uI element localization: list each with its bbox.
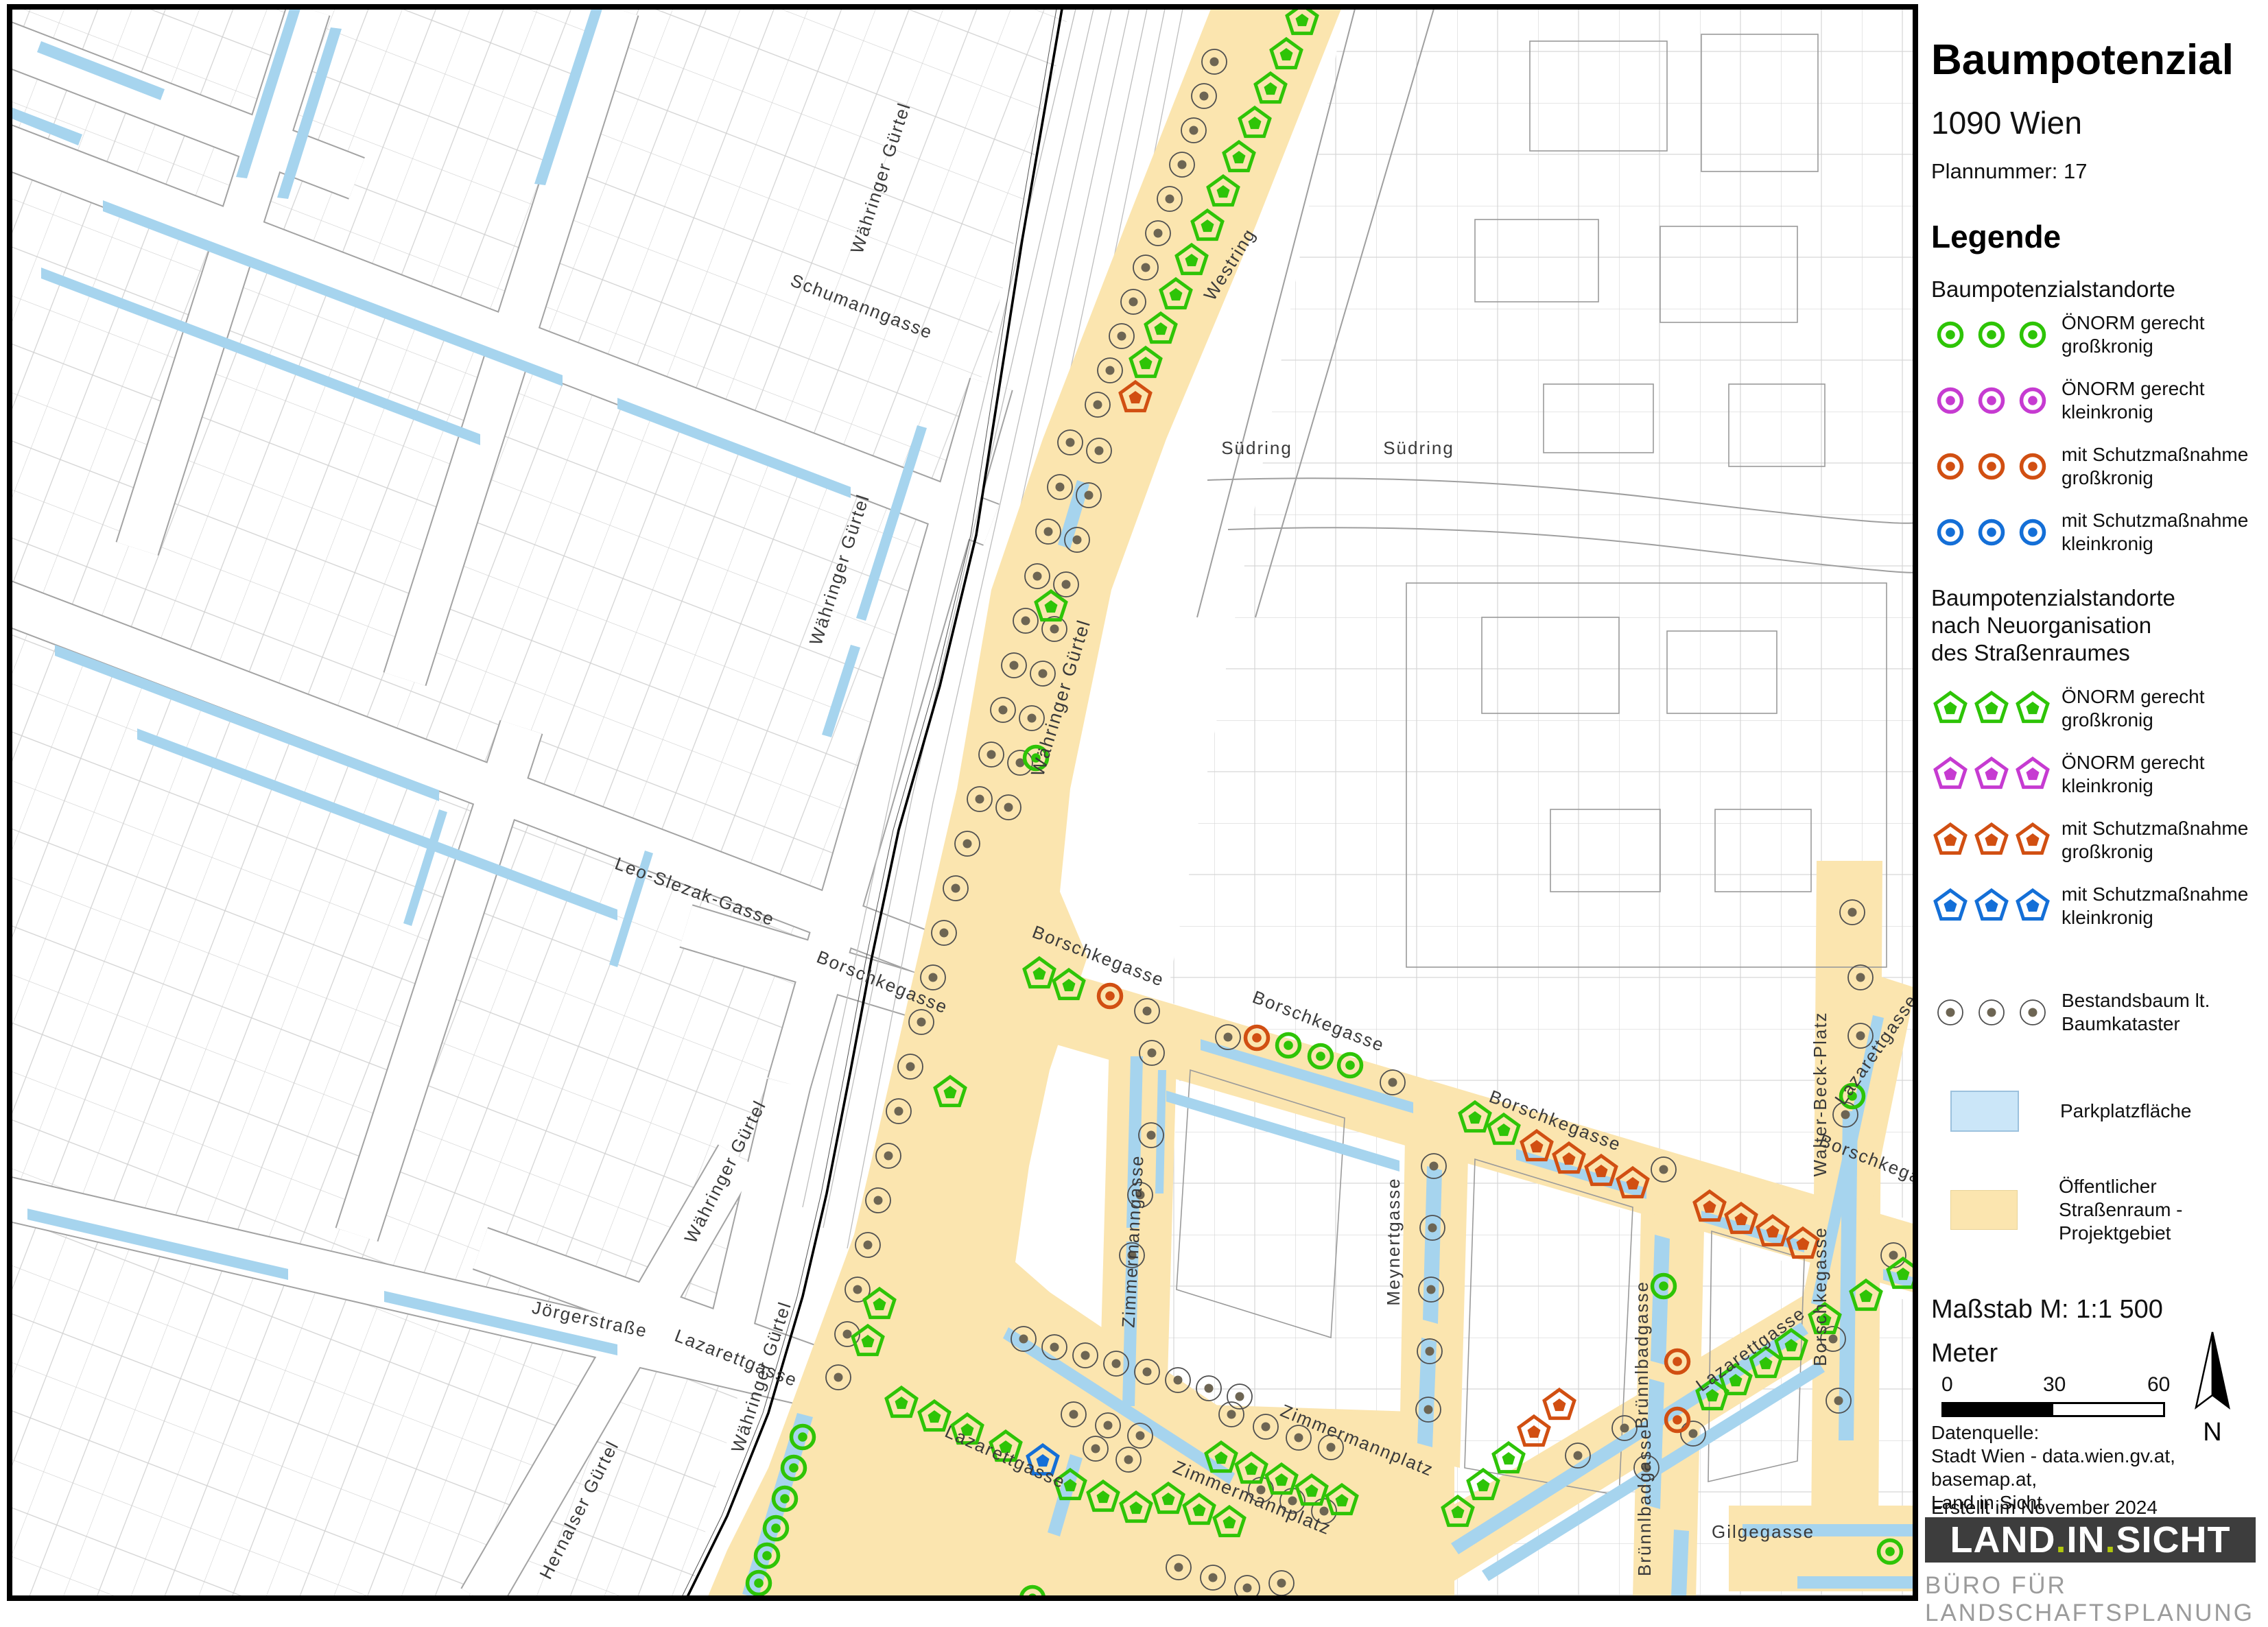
logo-dot: .	[2105, 1519, 2116, 1561]
legend-section2-line: Baumpotenzialstandorte	[1931, 584, 2175, 612]
scale-unit: Meter	[1931, 1339, 1998, 1368]
legend-label: großkronig	[2062, 466, 2248, 490]
magenta-circles-icon	[1931, 379, 2052, 422]
legend-existing-rows: ÖNORM gerecht großkronig ÖNORM gerecht k…	[1931, 302, 2248, 565]
green-pentagons-icon	[1931, 687, 2052, 730]
north-arrow-icon	[2190, 1329, 2235, 1418]
street-label: Südring	[1221, 438, 1292, 458]
data-source-line: Datenquelle:	[1931, 1421, 2268, 1445]
legend-section1-title: Baumpotenzialstandorte	[1931, 276, 2175, 303]
legend-label: mit Schutzmaßnahme	[2062, 443, 2248, 466]
street-label: Brünnlbadgasse	[1631, 1281, 1652, 1429]
scale-bar-black-half	[1944, 1404, 2053, 1415]
logo-part: SICHT	[2116, 1519, 2231, 1561]
legend-label: ÖNORM gerecht	[2062, 311, 2205, 335]
legend-section2-line: nach Neuorganisation	[1931, 612, 2175, 639]
legend-label: Öffentlicher Straßenraum -	[2059, 1175, 2268, 1222]
legend-item-magenta-circle: ÖNORM gerecht kleinkronig	[1931, 368, 2248, 434]
street-label: Brünnlbadgasse	[1634, 1428, 1655, 1576]
logo-tagline: BÜRO FÜR LANDSCHAFTSPLANUNG	[1925, 1572, 2268, 1627]
legend-item-blue-circle: mit Schutzmaßnahme kleinkronig	[1931, 499, 2248, 565]
info-panel: Baumpotenzial 1090 Wien Plannummer: 17 L…	[1921, 0, 2268, 1605]
legend-label: ÖNORM gerecht	[2062, 751, 2205, 774]
legend-new-rows: ÖNORM gerecht großkronig ÖNORM gerecht k…	[1931, 676, 2248, 939]
data-source-line: Stadt Wien - data.wien.gv.at, basemap.at…	[1931, 1445, 2268, 1491]
magenta-pentagons-icon	[1931, 753, 2052, 796]
existing-trees-icon	[1931, 991, 2052, 1034]
street-label: Meynertgasse	[1383, 1177, 1404, 1305]
scale-label: Maßstab M: 1:1 500	[1931, 1295, 2163, 1325]
legend-label: kleinkronig	[2062, 401, 2205, 424]
street-label: Walter-Beck-Platz	[1810, 1011, 1830, 1176]
company-logo: LAND.IN.SICHT	[1925, 1517, 2256, 1563]
blue-circles-icon	[1931, 511, 2052, 554]
legend-label: mit Schutzmaßnahme	[2062, 817, 2248, 840]
legend-heading: Legende	[1931, 218, 2061, 255]
legend-label: Baumkataster	[2062, 1012, 2210, 1036]
legend-label: mit Schutzmaßnahme	[2062, 509, 2248, 532]
logo-part: IN	[2066, 1519, 2105, 1561]
legend-label: Projektgebiet	[2059, 1222, 2268, 1245]
logo-part: LAND	[1950, 1519, 2055, 1561]
page-title: Baumpotenzial	[1931, 36, 2234, 84]
legend-item-blue-pentagon: mit Schutzmaßnahme kleinkronig	[1931, 873, 2248, 939]
legend-label: großkronig	[2062, 709, 2205, 732]
legend-label: großkronig	[2062, 840, 2248, 864]
page-subtitle: 1090 Wien	[1931, 104, 2082, 141]
legend-label: mit Schutzmaßnahme	[2062, 883, 2248, 906]
orange-circles-icon	[1931, 445, 2052, 488]
scale-ticks: 0 30 60	[1941, 1373, 2164, 1397]
legend-section2-line: des Straßenraumes	[1931, 639, 2175, 667]
street-label: Gilgegasse	[1712, 1521, 1815, 1542]
legend-item-green-circle: ÖNORM gerecht großkronig	[1931, 302, 2248, 368]
legend-label: kleinkronig	[2062, 532, 2248, 556]
parking-swatch	[1950, 1091, 2019, 1132]
scale-bar	[1941, 1402, 2165, 1417]
legend-label: großkronig	[2062, 335, 2205, 358]
legend-section2-title: Baumpotenzialstandorte nach Neuorganisat…	[1931, 584, 2175, 667]
logo-dot: .	[2055, 1519, 2066, 1561]
green-circles-icon	[1931, 313, 2052, 356]
created-date: Erstellt im November 2024	[1931, 1497, 2158, 1519]
legend-item-orange-circle: mit Schutzmaßnahme großkronig	[1931, 434, 2248, 499]
legend-item-parking: Parkplatzfläche	[1931, 1085, 2191, 1137]
scale-tick-30: 30	[2043, 1373, 2066, 1397]
legend-item-orange-pentagon: mit Schutzmaßnahme großkronig	[1931, 807, 2248, 873]
legend-label: ÖNORM gerecht	[2062, 685, 2205, 709]
scale-tick-60: 60	[2147, 1373, 2170, 1397]
legend-label: kleinkronig	[2062, 906, 2248, 929]
blue-pentagons-icon	[1931, 885, 2052, 927]
legend-label: Parkplatzfläche	[2060, 1100, 2191, 1123]
orange-pentagons-icon	[1931, 819, 2052, 862]
street-label: Borschkegasse	[1810, 1226, 1830, 1366]
scale-tick-0: 0	[1941, 1373, 1953, 1397]
legend-label: ÖNORM gerecht	[2062, 377, 2205, 401]
legend-label: kleinkronig	[2062, 774, 2205, 798]
legend-item-public-street: Öffentlicher Straßenraum - Projektgebiet	[1931, 1184, 2268, 1236]
scale-bar-white-half	[2053, 1404, 2163, 1415]
legend-item-bestand: Bestandsbaum lt. Baumkataster	[1931, 979, 2210, 1045]
plan-number: Plannummer: 17	[1931, 159, 2087, 184]
public-street-swatch	[1950, 1190, 2018, 1230]
legend-item-green-pentagon: ÖNORM gerecht großkronig	[1931, 676, 2248, 741]
street-label: Südring	[1383, 438, 1454, 458]
legend-label: Bestandsbaum lt.	[2062, 989, 2210, 1012]
legend-item-magenta-pentagon: ÖNORM gerecht kleinkronig	[1931, 741, 2248, 807]
